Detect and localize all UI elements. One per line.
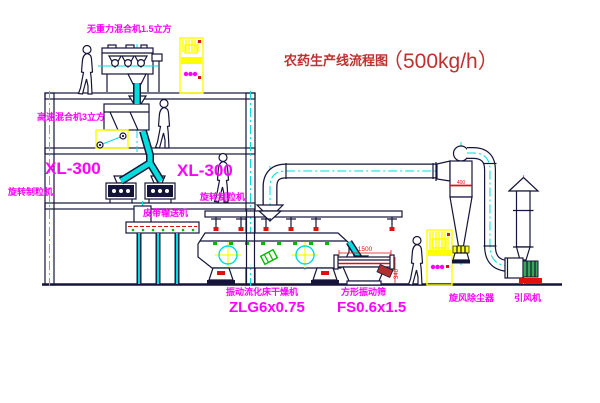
title-text: 农药生产线流程图 <box>283 53 388 68</box>
label-granulator-left-model: XL-300 <box>45 159 101 178</box>
diagram-svg: 1500 340 400 <box>0 0 600 403</box>
indicator-light <box>188 72 192 76</box>
label-granulator-mid-model: XL-300 <box>177 161 233 180</box>
cad-flow-diagram: 1500 340 400 <box>0 0 600 403</box>
draft-fan <box>505 258 542 283</box>
label-granulator-mid-name: 旋转制粒机 <box>199 191 245 202</box>
dim-sieve-length: 1500 <box>358 246 373 253</box>
feed-pipe-y-split <box>121 131 161 181</box>
person-figure <box>409 237 423 286</box>
dryer-exhaust-duct <box>270 163 437 212</box>
belt-conveyor <box>126 222 199 284</box>
dim-cyclone: 400 <box>457 180 466 186</box>
label-sieve-name: 方形振动筛 <box>341 286 386 297</box>
control-cabinet-1 <box>180 38 203 93</box>
person-figure <box>79 46 93 95</box>
label-granulator-left-name: 旋转制粒机 <box>7 186 53 197</box>
drawing-title: 农药生产线流程图 （500kg/h） <box>283 50 499 73</box>
indicator-light <box>193 72 197 76</box>
duct-funnel <box>257 205 283 211</box>
high-speed-mixer <box>96 96 149 148</box>
person-figure <box>156 100 170 149</box>
conveyor-legs <box>139 233 177 284</box>
indicator-light <box>431 265 435 269</box>
title-capacity: （500kg/h） <box>382 50 499 73</box>
cyclone-exhaust-duct <box>467 153 517 266</box>
label-dryer-model: ZLG6x0.75 <box>229 299 305 316</box>
dryer-top-plate <box>205 211 402 217</box>
label-belt-conveyor: 皮带输送机 <box>142 207 188 218</box>
control-cabinet-2 <box>427 230 452 285</box>
dim-sieve-height: 340 <box>394 268 400 279</box>
fluidbed-dryer <box>198 163 437 284</box>
dryer-foot-right <box>311 268 339 284</box>
spring-hangers <box>211 217 397 231</box>
dryer-foot-left <box>207 268 235 284</box>
label-gravity-mixer: 无重力混合机1.5立方 <box>86 23 172 34</box>
label-fan: 引风机 <box>514 292 541 303</box>
indicator-light <box>440 265 444 269</box>
label-high-speed-mixer: 高速混合机3立方 <box>37 111 105 122</box>
gravity-mixer <box>98 45 162 92</box>
label-cyclone: 旋风除尘器 <box>448 292 495 303</box>
indicator-light <box>435 265 439 269</box>
exhaust-stack <box>509 178 538 261</box>
label-sieve-model: FS0.6x1.5 <box>337 299 406 316</box>
label-dryer-name: 振动流化床干燥机 <box>226 286 298 297</box>
indicator-light <box>184 72 188 76</box>
